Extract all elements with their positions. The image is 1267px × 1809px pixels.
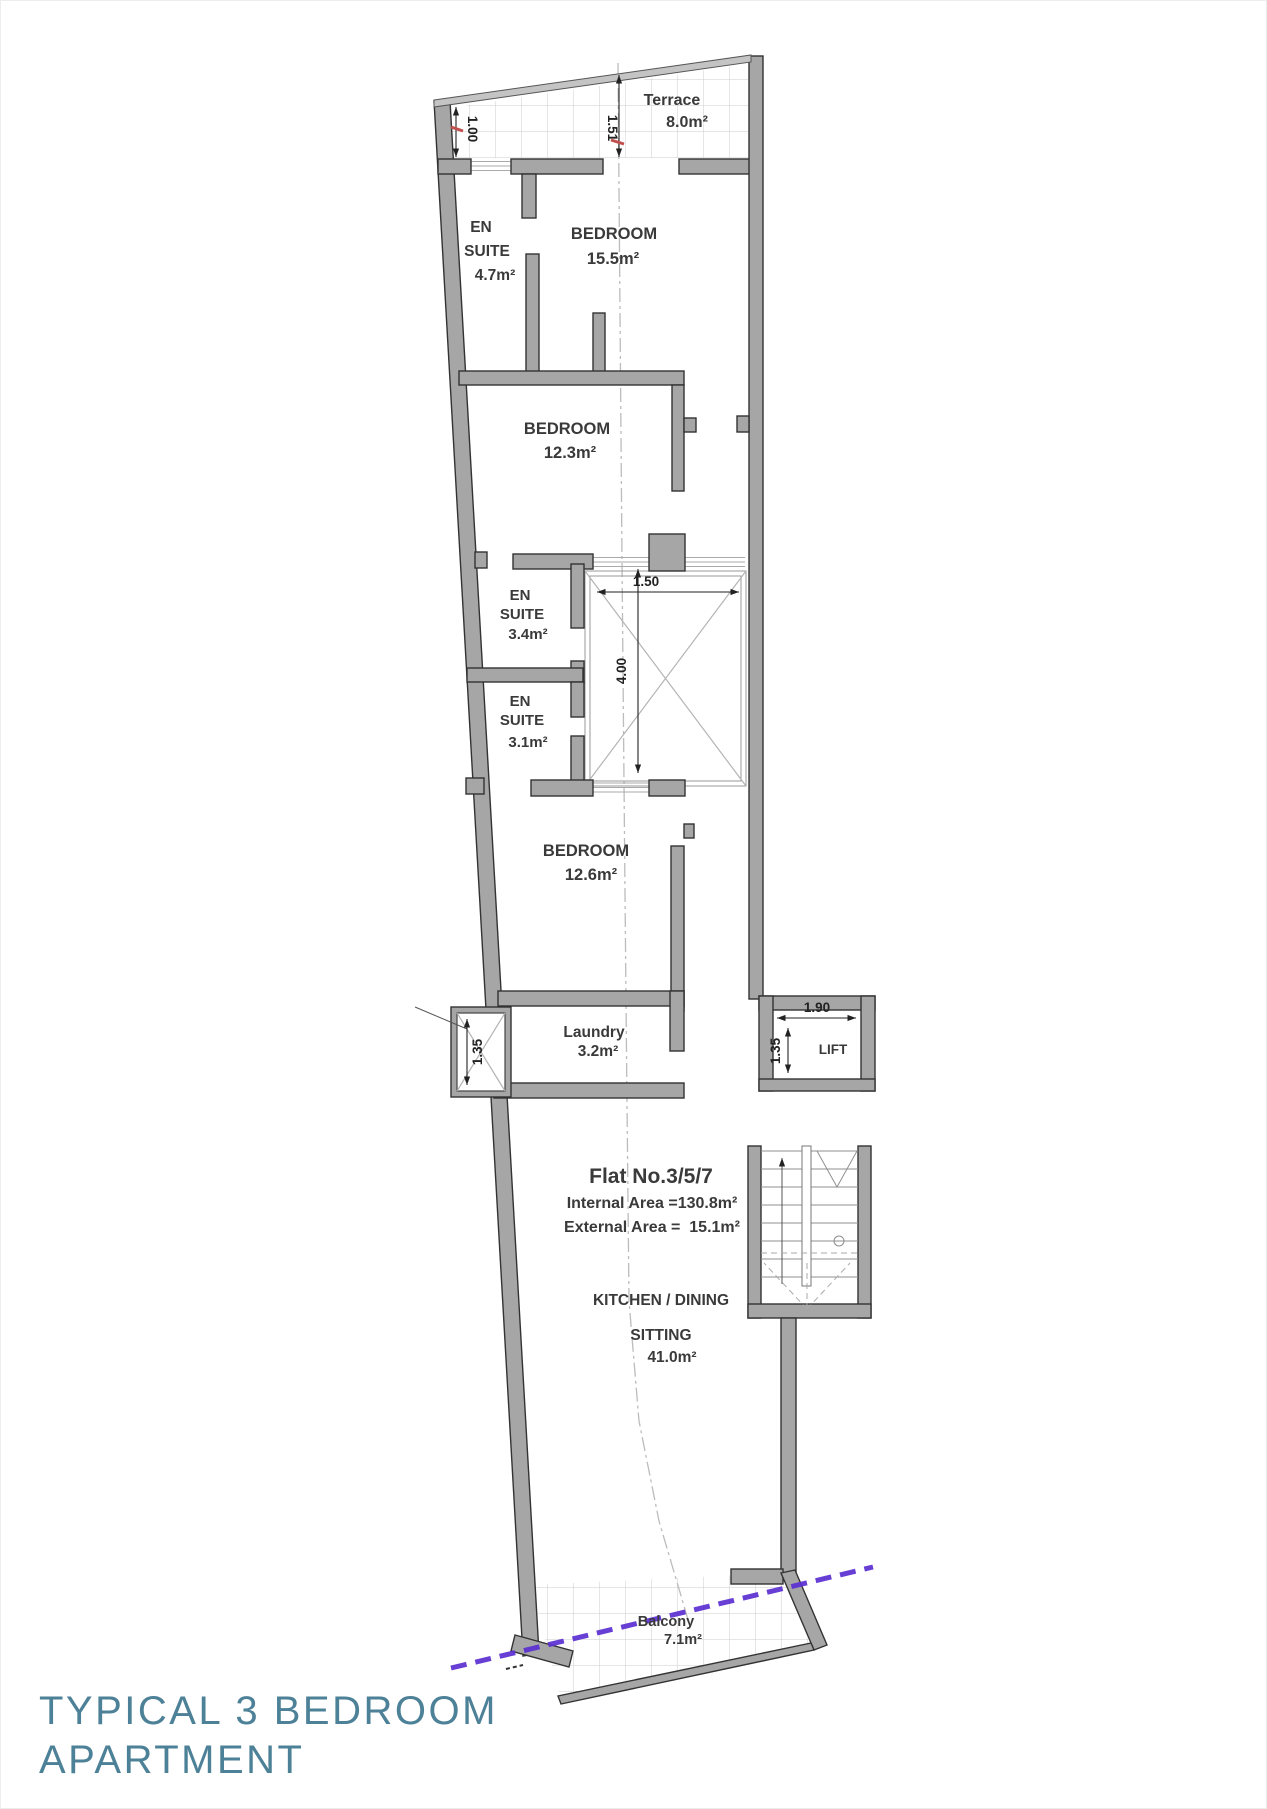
drawing-title: TYPICAL 3 BEDROOM APARTMENT [39, 1687, 498, 1785]
balcony-label: Balcony [638, 1614, 694, 1630]
dim-terrace-mid: 1.51 [605, 115, 620, 142]
floor-plan-page: 1.00 1.51 1.50 4.00 1.35 1.90 1.35 Terra… [0, 0, 1267, 1809]
bedroom1-label: BEDROOM [571, 225, 657, 243]
dim-shaft-width: 1.50 [633, 574, 659, 589]
dim-lift-height: 1.35 [768, 1037, 783, 1064]
ensuite1-label-1: EN [470, 219, 492, 236]
laundry-shaft [415, 1007, 505, 1091]
dim-lift-width: 1.90 [804, 1000, 830, 1015]
drawing-title-line1: TYPICAL 3 BEDROOM [39, 1687, 498, 1736]
laundry-area: 3.2m² [578, 1043, 619, 1060]
staircase [761, 1146, 858, 1309]
balcony-area: 7.1m² [664, 1632, 702, 1648]
ensuite3-label-1: EN [510, 693, 531, 710]
flat-number: Flat No.3/5/7 [589, 1165, 713, 1188]
lift-label: LIFT [819, 1042, 848, 1057]
bedroom3-area: 12.6m² [565, 866, 618, 884]
ensuite3-label-2: SUITE [500, 712, 544, 729]
drawing-title-line2: APARTMENT [39, 1736, 498, 1785]
laundry-label: Laundry [563, 1024, 625, 1041]
flat-internal-area: Internal Area =130.8m² [567, 1195, 738, 1212]
bedroom1-area: 15.5m² [587, 250, 640, 268]
ensuite2-area: 3.4m² [508, 626, 547, 643]
kitchen-label: KITCHEN / DINING [593, 1292, 729, 1309]
ensuite2-label-1: EN [510, 587, 531, 604]
sitting-label: SITTING [630, 1327, 691, 1344]
flat-external-area: External Area = 15.1m² [564, 1219, 740, 1236]
walls [434, 56, 875, 1704]
ensuite3-area: 3.1m² [508, 734, 547, 751]
bedroom2-area: 12.3m² [544, 444, 597, 462]
ensuite2-label-2: SUITE [500, 606, 544, 623]
dim-laundry-shaft: 1.35 [470, 1038, 485, 1065]
terrace-area: 8.0m² [666, 114, 708, 131]
kitchen-area: 41.0m² [647, 1349, 696, 1366]
ensuite1-label-2: SUITE [464, 243, 510, 260]
dim-terrace-left: 1.00 [465, 116, 480, 142]
floor-plan-drawing: 1.00 1.51 1.50 4.00 1.35 1.90 1.35 Terra… [1, 1, 1267, 1809]
bedroom3-label: BEDROOM [543, 842, 629, 860]
terrace-label: Terrace [644, 92, 701, 109]
bedroom2-label: BEDROOM [524, 420, 610, 438]
ensuite1-area: 4.7m² [475, 267, 516, 284]
dim-shaft-height: 4.00 [614, 658, 629, 684]
